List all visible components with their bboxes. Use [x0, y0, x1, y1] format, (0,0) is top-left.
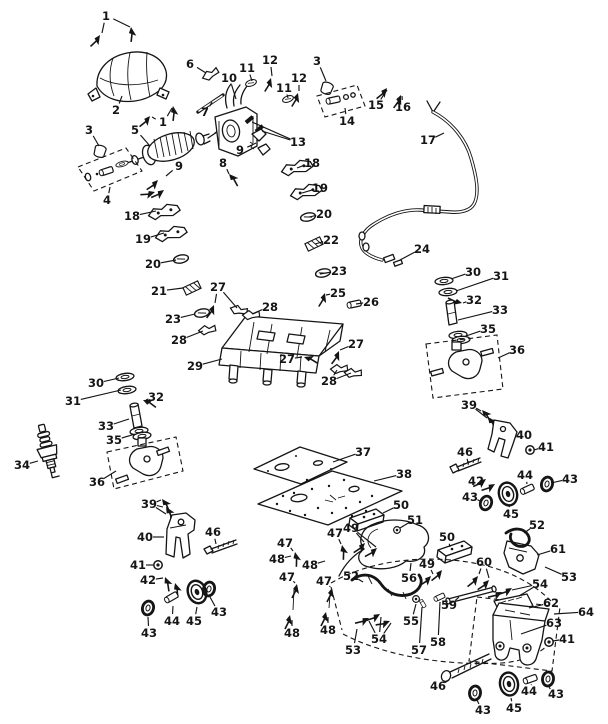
height-adjuster-left	[107, 372, 183, 489]
part-number-27: 27	[210, 280, 226, 294]
callout-leader-line	[355, 629, 358, 643]
screw-icon	[337, 544, 349, 560]
washer-ring-icon	[202, 581, 216, 597]
part-number-11: 11	[276, 81, 292, 95]
part-number-30: 30	[465, 265, 481, 279]
part-number-3: 3	[313, 54, 321, 68]
part-number-8: 8	[219, 156, 227, 170]
part-number-43: 43	[211, 605, 227, 619]
callout-leader-line	[545, 567, 562, 574]
screw-icon	[151, 187, 165, 202]
screw-icon	[292, 93, 300, 108]
lug-icon	[300, 212, 316, 223]
part-number-26: 26	[363, 295, 379, 309]
caster-bracket-assembly	[440, 594, 560, 701]
part-number-49: 49	[343, 521, 359, 535]
part-number-35: 35	[480, 322, 496, 336]
callout-leader-line	[456, 278, 493, 291]
part-number-6: 6	[186, 57, 194, 71]
callout-leader-line	[374, 476, 396, 481]
part-number-41: 41	[130, 558, 146, 572]
washer-icon	[115, 160, 128, 168]
callout-leader-line	[81, 390, 121, 399]
part-number-45: 45	[506, 701, 522, 715]
screw-icon	[168, 105, 179, 121]
part-number-55: 55	[403, 614, 419, 628]
grommet-icon	[394, 527, 401, 534]
callout-leader-line	[498, 353, 510, 358]
part-number-28: 28	[321, 374, 337, 388]
part-number-36: 36	[89, 475, 105, 489]
nut-icon	[545, 638, 553, 646]
part-number-18: 18	[304, 156, 320, 170]
callout-leader-line	[438, 602, 440, 635]
screw-icon	[140, 188, 156, 201]
part-number-19: 19	[312, 181, 328, 195]
part-number-59: 59	[441, 598, 457, 612]
axle-bolt	[204, 540, 237, 554]
part-number-28: 28	[262, 300, 278, 314]
callout-leader-line	[271, 67, 272, 76]
part-number-47: 47	[316, 574, 332, 588]
bearing-kit-box	[78, 148, 142, 191]
part-number-15: 15	[368, 98, 384, 112]
callout-leader-line	[458, 312, 492, 320]
spark-plug	[32, 422, 64, 479]
diagram-artwork	[32, 26, 560, 700]
part-number-54: 54	[532, 577, 548, 591]
motor-brush-icon	[183, 281, 201, 295]
callout-leader-line	[102, 23, 104, 33]
part-number-43: 43	[562, 472, 578, 486]
callout-leader-line	[380, 617, 381, 632]
part-number-46: 46	[205, 525, 221, 539]
part-number-3: 3	[85, 123, 93, 137]
part-number-43: 43	[475, 703, 491, 717]
callout-leader-line	[400, 252, 415, 260]
part-number-43: 43	[548, 687, 564, 701]
part-number-25: 25	[330, 286, 346, 300]
cable-clamp-icon	[394, 260, 403, 266]
part-number-29: 29	[187, 359, 203, 373]
washer-icon	[439, 288, 458, 297]
callout-leader-line	[166, 170, 173, 176]
part-number-20: 20	[145, 257, 161, 271]
screw-icon	[226, 172, 241, 186]
washer-ring-icon	[542, 671, 555, 686]
bearing-sleeve-icon	[326, 96, 341, 105]
retainer-clip-icon	[201, 67, 220, 81]
lug-icon	[173, 254, 189, 265]
knob-icon	[413, 596, 420, 603]
part-number-57: 57	[411, 643, 427, 657]
height-adjuster-right	[426, 277, 503, 398]
cable-clamp-icon	[384, 254, 395, 262]
part-number-41: 41	[538, 440, 554, 454]
washer-ring-icon	[540, 476, 554, 492]
axle-pin-icon	[522, 674, 537, 684]
part-number-63: 63	[546, 616, 562, 630]
spacer-pin-icon	[347, 300, 362, 309]
part-number-27: 27	[348, 337, 364, 351]
callout-leader-line	[187, 331, 204, 338]
callout-leader-line	[30, 461, 38, 463]
part-number-1: 1	[102, 9, 110, 23]
part-number-22: 22	[323, 233, 339, 247]
callout-leader-line	[141, 135, 151, 146]
part-number-44: 44	[521, 684, 537, 698]
part-number-28: 28	[171, 333, 187, 347]
callout-leader-line	[227, 169, 229, 174]
callout-leader-line	[435, 133, 444, 137]
terminal-lug-icon	[282, 94, 295, 103]
washer-ring-icon	[478, 495, 493, 512]
part-number-43: 43	[141, 626, 157, 640]
clip-icon	[198, 323, 217, 337]
part-number-12: 12	[291, 71, 307, 85]
callout-leader-line	[410, 563, 411, 571]
part-number-12: 12	[262, 53, 278, 67]
callout-leader-line	[318, 561, 325, 563]
screw-icon	[265, 78, 273, 93]
part-number-9: 9	[236, 143, 244, 157]
pivot-pin-icon	[419, 599, 426, 608]
callout-leader-line	[537, 551, 550, 555]
callout-leader-line	[104, 471, 116, 479]
part-number-21: 21	[151, 284, 167, 298]
part-number-48: 48	[302, 558, 318, 572]
part-number-33: 33	[98, 419, 114, 433]
callout-leader-line	[181, 314, 195, 317]
callout-leader-line	[157, 500, 161, 502]
part-number-14: 14	[339, 114, 355, 128]
axle-bolt	[450, 458, 481, 473]
nut-icon	[526, 446, 534, 454]
callout-leader-line	[156, 578, 163, 579]
callout-leader-line	[114, 419, 129, 424]
callout-leader-line	[148, 617, 149, 626]
part-number-38: 38	[396, 467, 412, 481]
part-number-44: 44	[517, 468, 533, 482]
part-number-53: 53	[345, 643, 361, 657]
part-number-32: 32	[148, 390, 164, 404]
parts-diagram-page: 1235146710111211123139891415161718181919…	[0, 0, 608, 724]
callout-leader-line	[420, 607, 422, 643]
part-number-46: 46	[457, 445, 473, 459]
callout-leader-line	[486, 569, 489, 578]
part-number-27: 27	[279, 352, 295, 366]
part-number-42: 42	[140, 573, 156, 587]
screw-icon	[354, 541, 367, 557]
screw-icon	[468, 574, 480, 590]
part-number-32: 32	[466, 293, 482, 307]
screw-icon	[376, 617, 391, 631]
part-number-48: 48	[284, 626, 300, 640]
nut-icon	[154, 561, 162, 569]
part-number-13: 13	[290, 135, 306, 149]
bearing-sleeve-icon	[98, 166, 113, 176]
axle-bolt	[440, 654, 491, 683]
part-number-33: 33	[492, 303, 508, 317]
part-number-18: 18	[124, 209, 140, 223]
callout-leader-line	[113, 19, 130, 27]
part-number-23: 23	[165, 312, 181, 326]
part-number-60: 60	[476, 555, 492, 569]
part-number-47: 47	[277, 536, 293, 550]
part-number-37: 37	[355, 445, 371, 459]
wheel-icon	[498, 671, 520, 697]
fan-shroud	[88, 52, 169, 102]
part-number-16: 16	[395, 100, 411, 114]
screw-icon	[332, 350, 341, 365]
part-number-11: 11	[239, 61, 255, 75]
part-number-53: 53	[561, 570, 577, 584]
screw-icon	[126, 26, 137, 42]
part-number-39: 39	[141, 497, 157, 511]
part-number-9: 9	[175, 159, 183, 173]
part-number-47: 47	[279, 570, 295, 584]
wheel-icon	[496, 481, 519, 508]
part-number-54: 54	[371, 632, 387, 646]
washer-ring-icon	[141, 600, 155, 616]
callout-leader-line	[413, 604, 416, 614]
part-number-35: 35	[106, 433, 122, 447]
part-number-48: 48	[269, 552, 285, 566]
part-number-17: 17	[420, 133, 436, 147]
part-number-46: 46	[430, 679, 446, 693]
screw-icon	[292, 584, 299, 598]
part-number-45: 45	[186, 614, 202, 628]
screw-icon	[367, 610, 382, 625]
callout-leader-line	[157, 506, 163, 508]
part-number-44: 44	[164, 614, 180, 628]
part-number-19: 19	[135, 232, 151, 246]
callout-leader-line	[173, 606, 174, 614]
callout-leader-line	[93, 136, 99, 146]
screw-icon	[355, 614, 370, 628]
callout-leader-line	[451, 274, 465, 279]
part-number-45: 45	[503, 507, 519, 521]
washer-icon	[116, 372, 135, 382]
part-number-23: 23	[331, 264, 347, 278]
part-number-5: 5	[131, 123, 139, 137]
part-number-4: 4	[103, 193, 111, 207]
screw-icon	[290, 551, 302, 567]
part-number-49: 49	[419, 557, 435, 571]
part-number-47: 47	[327, 526, 343, 540]
callout-leader-line	[479, 569, 481, 575]
part-number-40: 40	[516, 428, 532, 442]
callout-leader-line	[152, 117, 156, 119]
part-number-62: 62	[543, 596, 559, 610]
part-number-39: 39	[461, 398, 477, 412]
part-number-34: 34	[14, 458, 30, 472]
part-number-50: 50	[439, 530, 455, 544]
part-number-7: 7	[201, 105, 209, 119]
callout-leader-line	[466, 331, 480, 336]
callout-leader-line	[215, 539, 216, 544]
part-number-61: 61	[550, 542, 566, 556]
screw-icon	[319, 293, 327, 308]
callout-leader-line	[223, 292, 237, 308]
brush-plate-icon	[154, 224, 188, 242]
motor-brush-icon	[305, 237, 323, 251]
callout-leader-line	[554, 612, 578, 614]
part-number-31: 31	[65, 394, 81, 408]
washer-ring-icon	[469, 685, 482, 700]
part-number-64: 64	[578, 605, 594, 619]
callout-leader-line	[215, 294, 217, 303]
screw-icon	[147, 178, 160, 194]
part-number-48: 48	[320, 623, 336, 637]
part-number-41: 41	[559, 632, 575, 646]
part-number-52: 52	[529, 518, 545, 532]
part-number-51: 51	[407, 513, 423, 527]
callout-leader-line	[320, 67, 326, 81]
part-number-58: 58	[430, 635, 446, 649]
screw-icon	[365, 545, 379, 560]
part-number-20: 20	[316, 207, 332, 221]
callout-leader-line	[197, 67, 206, 73]
part-number-56: 56	[401, 571, 417, 585]
part-number-2: 2	[112, 103, 120, 117]
part-number-42: 42	[468, 474, 484, 488]
screw-icon	[327, 588, 334, 602]
part-number-52: 52	[343, 569, 359, 583]
callout-leader-line	[167, 288, 183, 290]
axle-pin-icon	[164, 591, 179, 603]
part-number-24: 24	[414, 242, 430, 256]
part-number-50: 50	[393, 498, 409, 512]
part-number-31: 31	[493, 269, 509, 283]
part-number-10: 10	[221, 71, 237, 85]
screw-icon	[140, 114, 152, 130]
callout-leader-line	[449, 544, 450, 547]
part-number-36: 36	[509, 343, 525, 357]
callout-leader-line	[285, 556, 291, 558]
exploded-parts-diagram: 1235146710111211123139891415161718181919…	[0, 0, 608, 724]
part-number-1: 1	[159, 115, 167, 129]
washer-icon	[435, 277, 454, 286]
axle-pin-icon	[519, 484, 534, 495]
part-number-43: 43	[462, 490, 478, 504]
part-number-40: 40	[137, 530, 153, 544]
wheel-bracket-left	[141, 497, 237, 616]
callout-leader-line	[156, 508, 166, 515]
screw-icon	[91, 33, 102, 49]
part-number-30: 30	[88, 376, 104, 390]
